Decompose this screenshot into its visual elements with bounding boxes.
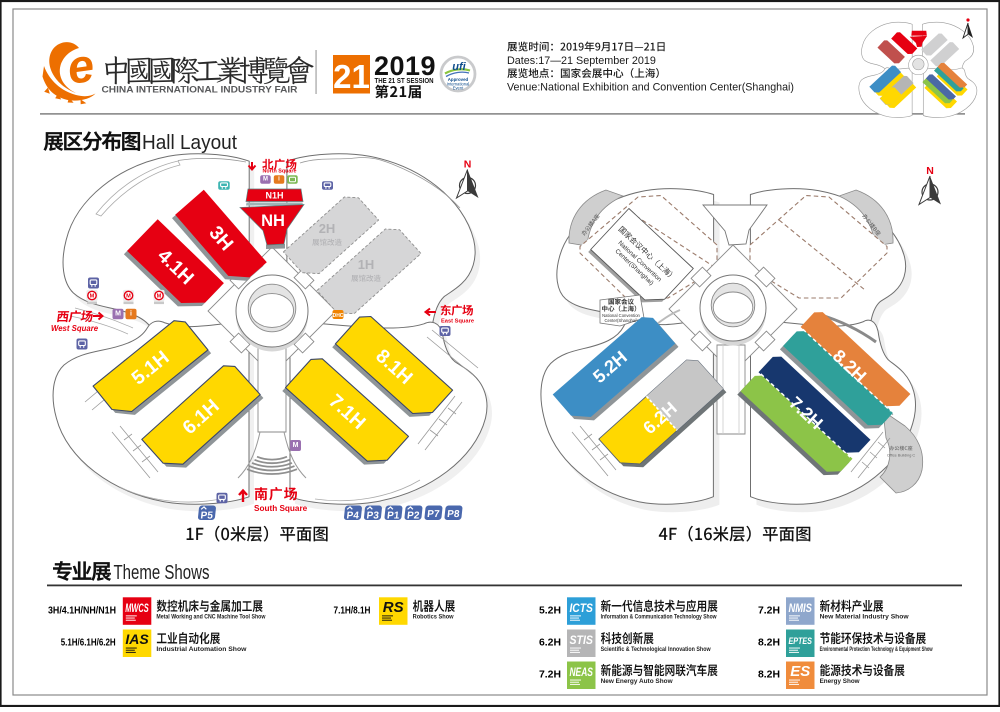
svg-text:Energy Show: Energy Show [820,678,861,685]
svg-text:Event: Event [453,86,464,91]
svg-text:6.2H: 6.2H [539,637,561,649]
svg-text:Metal Working and CNC Machine: Metal Working and CNC Machine Tool Show [156,614,266,621]
svg-text:M: M [293,442,299,449]
svg-text:Theme Shows: Theme Shows [114,561,210,584]
svg-text:NMIS: NMIS [788,601,812,615]
svg-text:P3: P3 [366,510,380,521]
svg-text:P2: P2 [406,510,420,521]
svg-text:Scientific & Technological Inn: Scientific & Technological Innovation Sh… [601,646,712,653]
svg-text:N: N [464,159,472,171]
svg-text:P7: P7 [427,509,441,520]
svg-text:ufi: ufi [452,61,466,73]
svg-text:P1: P1 [386,510,400,521]
svg-text:NH: NH [261,212,285,230]
svg-text:7.1H/8.1H: 7.1H/8.1H [334,604,371,616]
svg-text:Environmental Protection Techn: Environmental Protection Technology & Eq… [820,646,934,653]
svg-text:5.2H: 5.2H [539,604,561,616]
svg-text:Information & Communication Te: Information & Communication Technology S… [601,614,718,621]
svg-text:Center(Shanghai): Center(Shanghai) [604,318,638,323]
svg-text:ICTS: ICTS [569,601,593,615]
svg-text:THE 21 ST SESSION: THE 21 ST SESSION [375,76,434,85]
svg-text:5.1H/6.1H/6.2H: 5.1H/6.1H/6.2H [61,637,116,649]
svg-text:Venue:National Exhibition and: Venue:National Exhibition and Convention… [507,81,794,93]
svg-text:ES: ES [790,663,810,680]
svg-text:3H/4.1H/NH/N1H: 3H/4.1H/NH/N1H [48,604,116,616]
svg-text:P5: P5 [200,510,214,521]
svg-text:North Square: North Square [263,169,297,175]
svg-text:8.2H: 8.2H [758,637,780,649]
svg-text:West Square: West Square [51,324,99,333]
svg-text:NEAS: NEAS [569,665,593,679]
svg-text:New Material Industry Show: New Material Industry Show [820,614,910,621]
svg-text:M: M [115,311,121,318]
svg-text:STIS: STIS [569,633,593,647]
svg-text:P8: P8 [447,509,461,520]
svg-text:2H: 2H [319,221,336,236]
svg-text:1H: 1H [358,257,375,272]
svg-text:i: i [130,311,132,318]
svg-text:RS: RS [383,599,404,616]
svg-text:Office Building C: Office Building C [887,454,915,458]
svg-text:8.2H: 8.2H [758,669,780,681]
svg-text:7.2H: 7.2H [539,669,561,681]
svg-text:CHINA INTERNATIONAL INDUSTRY F: CHINA INTERNATIONAL INDUSTRY FAIR [102,85,298,95]
svg-text:7.2H: 7.2H [758,604,780,616]
svg-text:M: M [126,294,131,300]
svg-text:M: M [157,294,162,300]
svg-text:P4: P4 [346,510,360,521]
svg-text:Robotics Show: Robotics Show [413,614,455,621]
svg-text:Hall Layout: Hall Layout [142,131,237,154]
svg-text:M: M [90,294,95,300]
svg-text:New Energy Auto Show: New Energy Auto Show [601,678,674,685]
svg-text:DHC: DHC [333,313,344,319]
svg-text:MWCS: MWCS [125,601,149,615]
svg-text:M: M [263,177,268,183]
svg-text:21: 21 [333,58,370,95]
svg-text:EPTES: EPTES [788,636,812,647]
svg-text:IAS: IAS [125,631,149,647]
svg-text:East Square: East Square [441,319,475,325]
svg-text:N1H: N1H [265,191,283,201]
svg-text:N: N [926,165,934,177]
svg-text:Dates:17—21 September 2019: Dates:17—21 September 2019 [507,55,656,67]
svg-text:Industrial Automation Show: Industrial Automation Show [156,646,247,653]
svg-text:South Square: South Square [254,504,308,513]
